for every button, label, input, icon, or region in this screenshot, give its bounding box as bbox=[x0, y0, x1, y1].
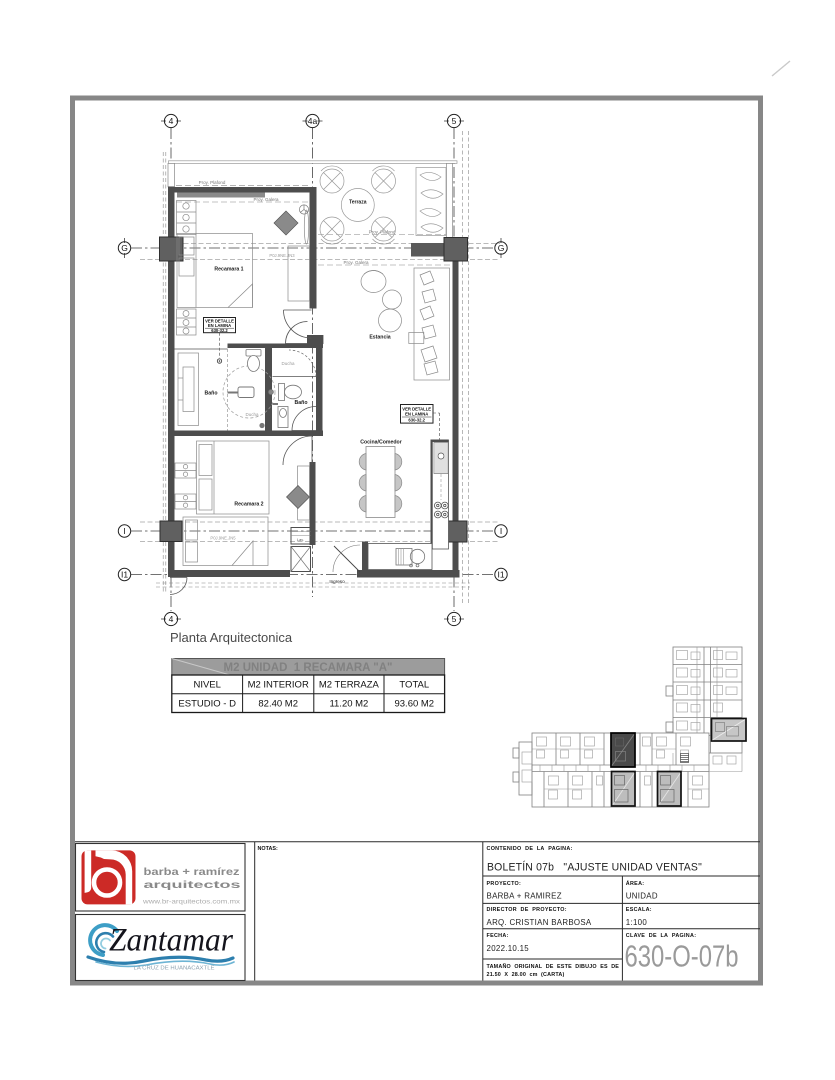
svg-text:barba + ramírez: barba + ramírez bbox=[144, 867, 240, 878]
svg-text:I1: I1 bbox=[497, 570, 504, 580]
svg-text:4a: 4a bbox=[308, 116, 318, 126]
svg-text:NIVEL: NIVEL bbox=[193, 680, 220, 691]
svg-text:G: G bbox=[121, 243, 128, 253]
svg-text:LA CRUZ DE HUANACAXTLE: LA CRUZ DE HUANACAXTLE bbox=[134, 966, 215, 972]
svg-text:www.br-arquitectos.com.mx: www.br-arquitectos.com.mx bbox=[142, 900, 240, 906]
svg-text:Proy. Galera: Proy. Galera bbox=[344, 260, 369, 265]
svg-text:Baño: Baño bbox=[295, 400, 308, 406]
svg-text:Estancia: Estancia bbox=[369, 335, 390, 341]
svg-text:1:100: 1:100 bbox=[626, 918, 648, 927]
svg-text:TOTAL: TOTAL bbox=[399, 680, 429, 691]
svg-text:P0J.9NE.JN3: P0J.9NE.JN3 bbox=[269, 253, 295, 258]
svg-text:NOTAS:: NOTAS: bbox=[258, 846, 278, 852]
svg-text:P0J.9NE.JN5: P0J.9NE.JN5 bbox=[210, 536, 236, 541]
svg-text:Zantamar: Zantamar bbox=[109, 923, 233, 959]
svg-text:M2 TERRAZA: M2 TERRAZA bbox=[319, 680, 380, 691]
svg-text:630-O-07b: 630-O-07b bbox=[625, 939, 739, 974]
svg-text:M2 INTERIOR: M2 INTERIOR bbox=[248, 680, 309, 691]
svg-text:ESCALA:: ESCALA: bbox=[626, 907, 652, 913]
svg-text:TAMAÑO ORIGINAL DE ESTE DI: TAMAÑO ORIGINAL DE ESTE DIBUJO ES DE bbox=[487, 963, 620, 970]
svg-text:ARQ. CRISTIAN BARBOSA: ARQ. CRISTIAN BARBOSA bbox=[487, 918, 592, 927]
svg-text:82.40 M2: 82.40 M2 bbox=[258, 699, 298, 710]
svg-text:630-32.2: 630-32.2 bbox=[211, 328, 228, 333]
svg-text:DIRECTOR DE PROYECTO:: DIRECTOR DE PROYECTO: bbox=[487, 907, 567, 913]
svg-text:I: I bbox=[500, 526, 502, 536]
svg-text:Ingreso: Ingreso bbox=[329, 579, 345, 584]
svg-text:Proy. Plafond: Proy. Plafond bbox=[199, 180, 226, 185]
svg-text:Lav.: Lav. bbox=[297, 538, 304, 542]
svg-text:Ducha: Ducha bbox=[245, 412, 259, 417]
svg-text:93.60 M2: 93.60 M2 bbox=[394, 699, 434, 710]
svg-text:I1: I1 bbox=[121, 570, 128, 580]
svg-text:5: 5 bbox=[452, 614, 457, 624]
svg-text:CONTENIDO DE LA PAGINA:: CONTENIDO DE LA PAGINA: bbox=[487, 846, 573, 852]
svg-text:630-32.2: 630-32.2 bbox=[408, 418, 425, 423]
svg-text:BOLETÍN 07b "AJUSTE UNIDAD V: BOLETÍN 07b "AJUSTE UNIDAD VENTAS" bbox=[487, 861, 702, 874]
svg-text:ÁREA:: ÁREA: bbox=[626, 880, 645, 887]
svg-text:arquitectos: arquitectos bbox=[144, 880, 242, 891]
svg-text:4: 4 bbox=[169, 614, 174, 624]
svg-text:21.50 X 28.00 cm (CARTA): 21.50 X 28.00 cm (CARTA) bbox=[487, 972, 565, 978]
svg-text:Recamara 1: Recamara 1 bbox=[214, 267, 243, 273]
svg-text:PROYECTO:: PROYECTO: bbox=[487, 881, 522, 887]
svg-text:M2 UNIDAD 1 RECAMARA "A": M2 UNIDAD 1 RECAMARA "A" bbox=[224, 662, 393, 674]
svg-text:Cocina/Comedor: Cocina/Comedor bbox=[360, 440, 402, 446]
svg-text:Terraza: Terraza bbox=[349, 200, 367, 206]
svg-text:FECHA:: FECHA: bbox=[487, 933, 509, 939]
svg-text:EN LAMINA: EN LAMINA bbox=[405, 412, 428, 417]
svg-text:Baño: Baño bbox=[205, 391, 218, 397]
svg-text:11.20 M2: 11.20 M2 bbox=[329, 699, 368, 710]
svg-text:I: I bbox=[123, 526, 125, 536]
svg-text:BARBA + RAMIREZ: BARBA + RAMIREZ bbox=[487, 891, 562, 900]
svg-text:G: G bbox=[498, 243, 505, 253]
svg-text:UNIDAD: UNIDAD bbox=[626, 891, 658, 900]
svg-text:Planta Arquitectonica: Planta Arquitectonica bbox=[170, 630, 293, 645]
svg-text:4: 4 bbox=[169, 116, 174, 126]
svg-text:ESTUDIO - D: ESTUDIO - D bbox=[178, 699, 236, 710]
svg-text:5: 5 bbox=[452, 116, 457, 126]
svg-text:Recamara 2: Recamara 2 bbox=[234, 502, 263, 508]
svg-text:Proy. Galera: Proy. Galera bbox=[254, 197, 279, 202]
svg-text:2022.10.15: 2022.10.15 bbox=[487, 944, 530, 953]
svg-text:Ducha: Ducha bbox=[281, 361, 295, 366]
